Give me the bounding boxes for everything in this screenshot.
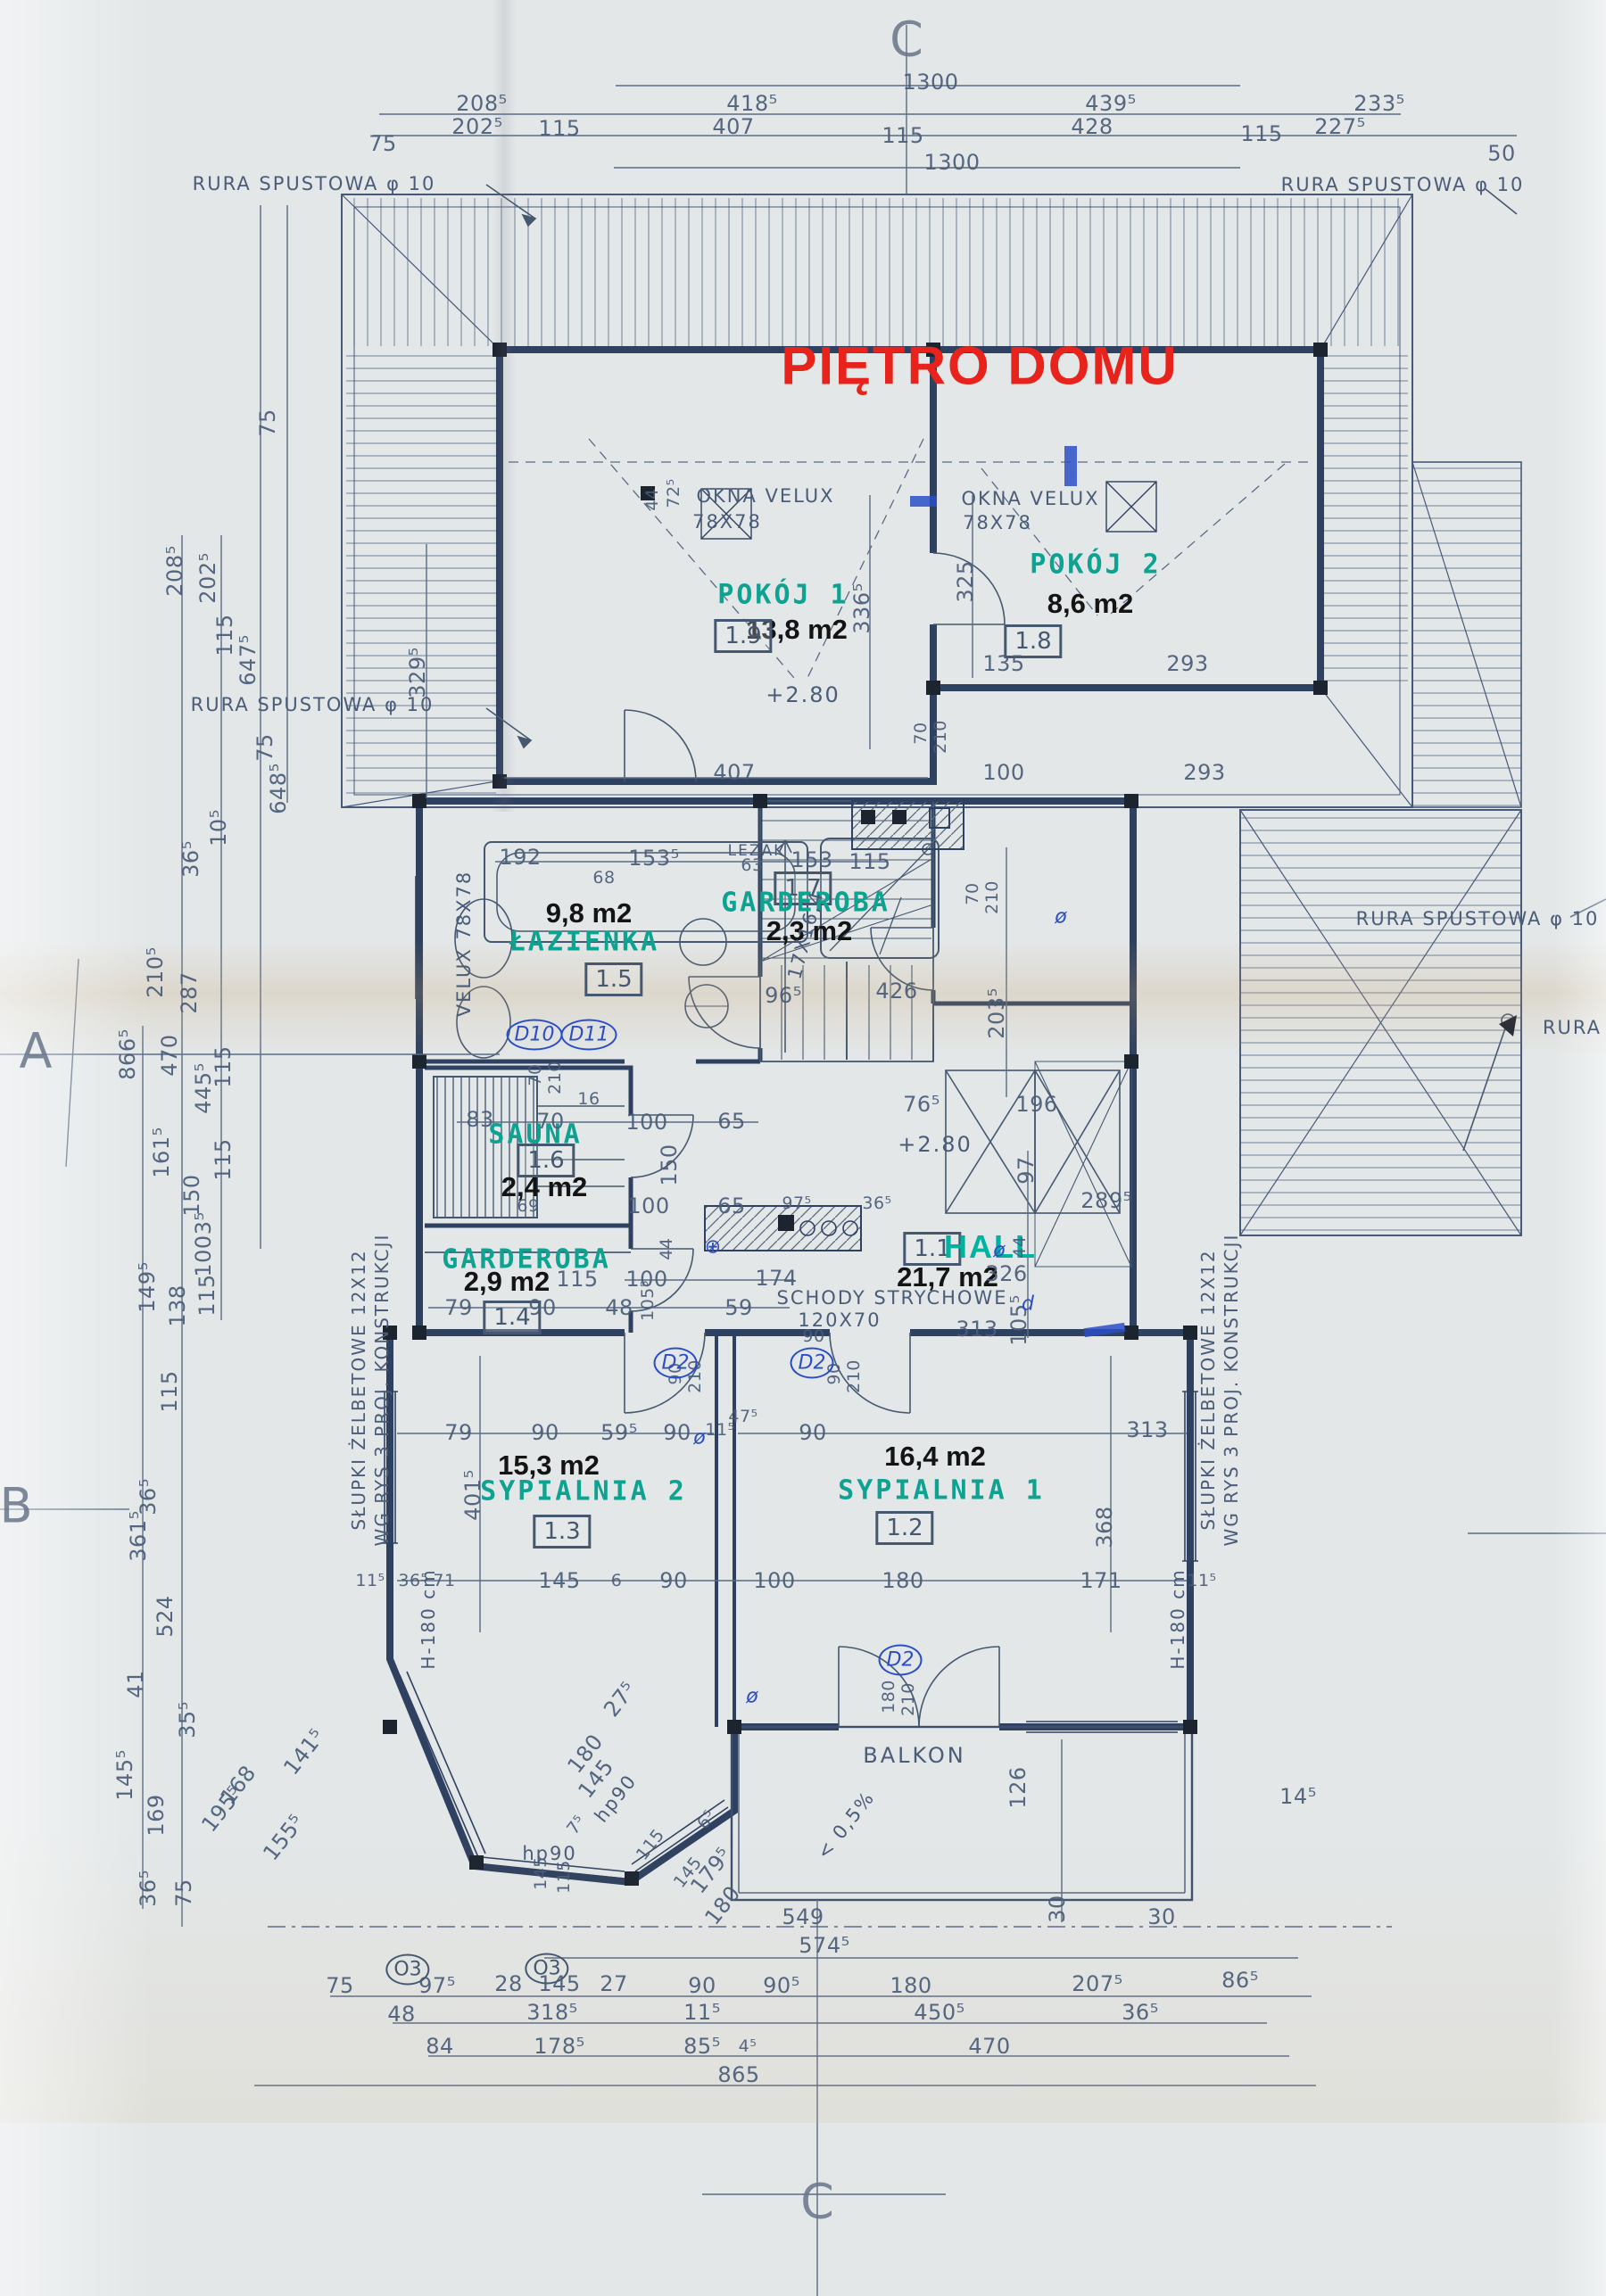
dimension-label: 289⁵ bbox=[1080, 1188, 1131, 1213]
dimension-label: 418⁵ bbox=[726, 91, 777, 116]
dimension-label: 233⁵ bbox=[1354, 91, 1404, 116]
room-area-lazienka: 9,8 m2 bbox=[546, 897, 633, 929]
pen-annotation: ø bbox=[993, 1240, 1005, 1262]
dimension-label: 450⁵ bbox=[914, 2000, 964, 2025]
dimension-label: 11⁵ bbox=[355, 1571, 385, 1590]
dimension-label: 96⁵ bbox=[765, 983, 802, 1008]
chimney-block bbox=[852, 801, 964, 849]
dimension-label: 153⁵ bbox=[628, 846, 679, 871]
room-number-sypialnia1: 1.2 bbox=[875, 1511, 933, 1545]
dimension-label: 153 bbox=[791, 847, 832, 872]
dimension-label: 68 bbox=[592, 868, 615, 888]
dimension-label: 59 bbox=[724, 1295, 753, 1320]
dimension-label: 368 bbox=[1092, 1506, 1117, 1548]
dimension-label: 115 bbox=[195, 1274, 219, 1316]
dimension-label: 470 bbox=[968, 2034, 1010, 2059]
dimension-label: 428 bbox=[1071, 114, 1113, 139]
pen-annotation: O3 bbox=[385, 1954, 429, 1986]
dimension-label: 36⁵ bbox=[862, 1193, 891, 1213]
pen-annotation: ø bbox=[1055, 906, 1066, 929]
dimension-label: 210⁵ bbox=[143, 946, 168, 997]
room-area-sauna: 2,4 m2 bbox=[501, 1171, 588, 1203]
room-area-sypialnia1: 16,4 m2 bbox=[884, 1441, 986, 1473]
dimension-label: 63 bbox=[741, 855, 763, 875]
dimension-label: 85⁵ bbox=[683, 2034, 721, 2059]
blueprint-page: PIĘTRO DOMU 1.1 HALL 21,7 m2 16,4 m2 SYP… bbox=[0, 0, 1606, 2296]
dimension-label: 293 bbox=[1183, 760, 1225, 785]
dimension-label: 84 bbox=[426, 2034, 454, 2059]
dimension-label: 69 bbox=[517, 1196, 539, 1216]
dimension-label: 361⁵ bbox=[126, 1510, 151, 1561]
dimension-label: 336⁵ bbox=[849, 582, 874, 633]
dimension-label: 865 bbox=[717, 2062, 759, 2087]
dimension-label: 79 bbox=[444, 1295, 473, 1320]
pen-annotation: O3 bbox=[525, 1953, 568, 1985]
dimension-label: 115 bbox=[157, 1370, 182, 1412]
dimension-label: 83 bbox=[466, 1107, 494, 1132]
dimension-label: 100 bbox=[627, 1193, 669, 1218]
dimension-label: 180 bbox=[882, 1568, 923, 1593]
dimension-label: 90 bbox=[528, 1295, 557, 1320]
dimension-label: 90 bbox=[799, 1420, 827, 1445]
pen-annotation: d bbox=[1022, 1293, 1034, 1316]
room-name-lazienka: ŁAZIENKA bbox=[509, 927, 660, 958]
downpipe-label-mid-right: RURA SPUSTOWA φ 10 bbox=[1356, 908, 1600, 929]
dimension-label: 115 bbox=[882, 123, 923, 148]
dimension-label: 648⁵ bbox=[266, 763, 291, 814]
dimension-label: 227⁵ bbox=[1314, 114, 1365, 139]
balcony-label: BALKON bbox=[863, 1743, 966, 1768]
room-name-sypialnia2: SYPIALNIA 2 bbox=[480, 1476, 687, 1507]
dimension-label: 208⁵ bbox=[456, 91, 507, 116]
dimension-label: 10⁵ bbox=[206, 809, 231, 847]
dimension-label: 150 bbox=[179, 1174, 204, 1216]
pen-annotation: ø bbox=[746, 1686, 757, 1708]
dimension-label: 313 bbox=[1126, 1417, 1168, 1442]
dimension-label: 207⁵ bbox=[1072, 1971, 1122, 1996]
dimension-label: 97⁵ bbox=[782, 1193, 811, 1213]
dimension-label: 100 bbox=[753, 1568, 795, 1593]
dimension-label: 27 bbox=[600, 1971, 628, 1996]
dimension-label: 149⁵ bbox=[135, 1261, 160, 1312]
dimension-label: 210 bbox=[545, 1061, 565, 1094]
page-title: PIĘTRO DOMU bbox=[781, 335, 1178, 397]
dimension-label: 48 bbox=[387, 2002, 416, 2027]
velux-window-label-2: OKNA VELUX bbox=[961, 488, 1099, 509]
dimension-label: 90 bbox=[688, 1973, 716, 1998]
dimension-label: 115 bbox=[211, 1045, 236, 1087]
dimension-label: 210 bbox=[898, 1682, 918, 1716]
axis-marker-b: B bbox=[0, 1478, 33, 1534]
dimension-label: 426 bbox=[875, 979, 917, 1003]
dimension-label: 126 bbox=[1006, 1766, 1031, 1808]
dimension-label: 115 bbox=[1240, 121, 1282, 146]
dimension-label: 71 bbox=[433, 1571, 455, 1590]
dimension-label: 30 bbox=[1045, 1895, 1070, 1923]
dimension-label: 138 bbox=[165, 1284, 190, 1326]
dimension-label: 169 bbox=[144, 1794, 169, 1836]
dimension-label: 90 bbox=[531, 1420, 559, 1445]
dimension-label: 161⁵ bbox=[149, 1127, 174, 1177]
downpipe-label-top-right: RURA SPUSTOWA φ 10 bbox=[1281, 174, 1525, 195]
dimension-label: 75 bbox=[326, 1973, 354, 1998]
dimension-label: 196 bbox=[1015, 1092, 1057, 1117]
dimension-label: 1300 bbox=[923, 150, 980, 175]
dimension-label: 325 bbox=[953, 560, 978, 602]
dimension-label: 75 bbox=[368, 131, 397, 156]
dimension-label: 30 bbox=[1147, 1904, 1176, 1929]
room-number-pokoj1: 1.9 bbox=[714, 619, 772, 653]
dimension-label: 36⁵ bbox=[1122, 2000, 1159, 2025]
dimension-label: 574⁵ bbox=[799, 1933, 849, 1958]
axis-marker-c-top: C bbox=[890, 12, 923, 68]
dimension-label: 208⁵ bbox=[162, 545, 187, 596]
dimension-label: 41 bbox=[123, 1670, 148, 1698]
dimension-label: 549 bbox=[782, 1904, 824, 1929]
dimension-label: 407 bbox=[712, 114, 754, 139]
dimension-label: 210 bbox=[931, 720, 950, 754]
dimension-label: 145⁵ bbox=[112, 1749, 137, 1800]
dimension-label: 115 bbox=[211, 1138, 236, 1180]
dimension-label: 105⁵ bbox=[638, 1280, 658, 1321]
dimension-label: 115 bbox=[538, 116, 580, 141]
columns-note-right-line2: WG RYS 3 PROJ. KONSTRUKCJI bbox=[1221, 1234, 1242, 1547]
dimension-label: 115 bbox=[212, 614, 237, 656]
dimension-label: 11⁵ bbox=[683, 2000, 721, 2025]
dimension-label: 202⁵ bbox=[451, 114, 502, 139]
dimension-label: 145 bbox=[538, 1568, 580, 1593]
dimension-label: 36⁵ bbox=[136, 1870, 161, 1907]
velux-window-size-1: 78X78 bbox=[692, 511, 762, 533]
dimension-label: 72⁵ bbox=[664, 478, 683, 508]
dimension-label: 16 bbox=[577, 1089, 600, 1109]
pen-annotation: D2 bbox=[654, 1348, 698, 1379]
dimension-label: 293 bbox=[1166, 651, 1208, 676]
dimension-label: 4⁵ bbox=[739, 2036, 757, 2056]
room-name-sypialnia1: SYPIALNIA 1 bbox=[838, 1475, 1045, 1507]
attic-stairs-label: SCHODY STRYCHOWE bbox=[777, 1287, 1008, 1309]
room-area-garderoba-2: 2,9 m2 bbox=[464, 1266, 551, 1298]
dimension-label: 470 bbox=[157, 1034, 182, 1076]
dimension-label: 75 bbox=[255, 409, 280, 437]
dimension-label: 192 bbox=[499, 845, 541, 870]
dimension-label: 75 bbox=[252, 733, 277, 762]
dimension-label: 439⁵ bbox=[1085, 91, 1136, 116]
pen-annotation: ⊕ bbox=[705, 1236, 721, 1259]
dimension-label: 647⁵ bbox=[236, 634, 261, 685]
dimension-label: 47⁵ bbox=[728, 1407, 757, 1426]
dimension-label: 59⁵ bbox=[600, 1420, 638, 1445]
dimension-label: 866⁵ bbox=[115, 1028, 140, 1079]
dimension-label: 329⁵ bbox=[405, 647, 430, 698]
dimension-label: 210 bbox=[844, 1359, 864, 1393]
pen-annotation: D11 bbox=[561, 1020, 617, 1051]
velux-side-label: VELUX 78X78 bbox=[453, 871, 475, 1018]
dimension-label: 76⁵ bbox=[903, 1092, 940, 1117]
velux-window-label-1: OKNA VELUX bbox=[696, 485, 834, 507]
dimension-label: 70 bbox=[526, 1063, 545, 1086]
dimension-label: 326 bbox=[985, 1261, 1027, 1286]
dimension-label: 171 bbox=[1080, 1568, 1122, 1593]
room-name-pokoj2: POKÓJ 2 bbox=[1030, 549, 1161, 581]
dimension-label: 75 bbox=[171, 1879, 196, 1907]
columns-note-left-line1: SŁUPKI ŻELBETOWE 12X12 bbox=[348, 1249, 369, 1530]
velux-window-size-2: 78X78 bbox=[963, 512, 1032, 533]
dimension-label: 203⁵ bbox=[984, 987, 1009, 1038]
dimension-label: 287 bbox=[177, 971, 202, 1013]
dimension-label: 1300 bbox=[902, 70, 958, 95]
dimension-label: 100 bbox=[625, 1110, 667, 1135]
dimension-label: 178⁵ bbox=[534, 2034, 584, 2059]
room-number-sypialnia2: 1.3 bbox=[533, 1515, 591, 1549]
dimension-label: 44 bbox=[657, 1237, 676, 1259]
pen-annotation: ø bbox=[693, 1427, 705, 1449]
dimension-label: 90 bbox=[659, 1568, 688, 1593]
dimension-label: 65 bbox=[717, 1109, 746, 1134]
dimension-label: 90 bbox=[802, 1326, 824, 1346]
dimension-label: 44 bbox=[1010, 1235, 1030, 1258]
room-number-lazienka: 1.5 bbox=[584, 962, 642, 996]
dimension-label: 407 bbox=[713, 760, 755, 785]
dimension-label: 97 bbox=[1014, 1156, 1039, 1185]
dimension-label: 70 bbox=[963, 882, 982, 904]
dimension-label: 79 bbox=[444, 1420, 473, 1445]
dimension-label: 50 bbox=[1487, 141, 1516, 166]
dimension-label: 150 bbox=[657, 1144, 682, 1185]
pen-annotation: D10 bbox=[507, 1020, 563, 1051]
dimension-label: 145 bbox=[531, 1856, 551, 1890]
dimension-label: 180 bbox=[890, 1973, 931, 1998]
room-area-pokoj2: 8,6 m2 bbox=[1047, 588, 1134, 620]
dimension-label: 28 bbox=[494, 1971, 523, 1996]
dimension-label: 1003⁵ bbox=[191, 1211, 216, 1276]
axis-marker-c-bottom: C bbox=[800, 2174, 834, 2230]
dimension-label: 115 bbox=[554, 1860, 574, 1894]
dimension-label: 115 bbox=[556, 1267, 598, 1292]
dimension-label: 401⁵ bbox=[460, 1469, 485, 1520]
ridge-lines bbox=[509, 439, 1312, 678]
dimension-label: 65 bbox=[717, 1193, 746, 1218]
columns-note-right-line1: SŁUPKI ŻELBETOWE 12X12 bbox=[1197, 1249, 1219, 1530]
dimension-label: 115 bbox=[849, 849, 890, 874]
downpipe-label-partial-right: RURA bbox=[1543, 1017, 1602, 1038]
pen-annotation: D2 bbox=[879, 1645, 923, 1676]
dimension-label: 36⁵ bbox=[178, 840, 203, 878]
columns-note-left-line2: WG RYS 3 PROJ. KONSTRUKCJI bbox=[371, 1234, 393, 1547]
dimension-label: 100 bbox=[982, 760, 1024, 785]
wall-height-label-right: H-180 cm bbox=[1167, 1568, 1188, 1669]
dimension-label: 524 bbox=[153, 1595, 178, 1637]
dimension-label: 86⁵ bbox=[1221, 1968, 1259, 1993]
dimension-label: 210 bbox=[982, 880, 1002, 914]
dimension-label: 44 bbox=[642, 488, 662, 510]
downpipe-label-mid-left: RURA SPUSTOWA φ 10 bbox=[191, 694, 435, 715]
dimension-label: 90 bbox=[663, 1420, 691, 1445]
downpipe-label-top-left: RURA SPUSTOWA φ 10 bbox=[193, 173, 436, 194]
dimension-label: 36⁵ bbox=[398, 1571, 427, 1590]
pen-annotation: D2 bbox=[791, 1348, 834, 1379]
dimension-label: 14⁵ bbox=[1279, 1784, 1317, 1809]
dimension-label: 180 bbox=[879, 1680, 898, 1714]
axis-marker-a: A bbox=[20, 1023, 53, 1079]
dimension-label: 35⁵ bbox=[175, 1701, 200, 1739]
dimension-label: 318⁵ bbox=[526, 2000, 577, 2025]
room-name-pokoj1: POKÓJ 1 bbox=[717, 580, 849, 611]
dimension-label: 90⁵ bbox=[763, 1973, 800, 1998]
level-mark-2: +2.80 bbox=[898, 1132, 973, 1157]
dimension-label: 70 bbox=[911, 722, 931, 744]
level-mark-1: +2.80 bbox=[766, 682, 840, 707]
dimension-label: 202⁵ bbox=[195, 552, 220, 603]
dimension-label: 135 bbox=[982, 651, 1024, 676]
dimension-label: 48 bbox=[605, 1295, 633, 1320]
dimension-label: 11⁵ bbox=[1187, 1571, 1216, 1590]
dimension-label: 70 bbox=[536, 1109, 565, 1134]
dimension-label: 313 bbox=[956, 1317, 998, 1342]
dimension-label: 6 bbox=[611, 1571, 623, 1590]
dimension-label: 174 bbox=[755, 1266, 797, 1291]
